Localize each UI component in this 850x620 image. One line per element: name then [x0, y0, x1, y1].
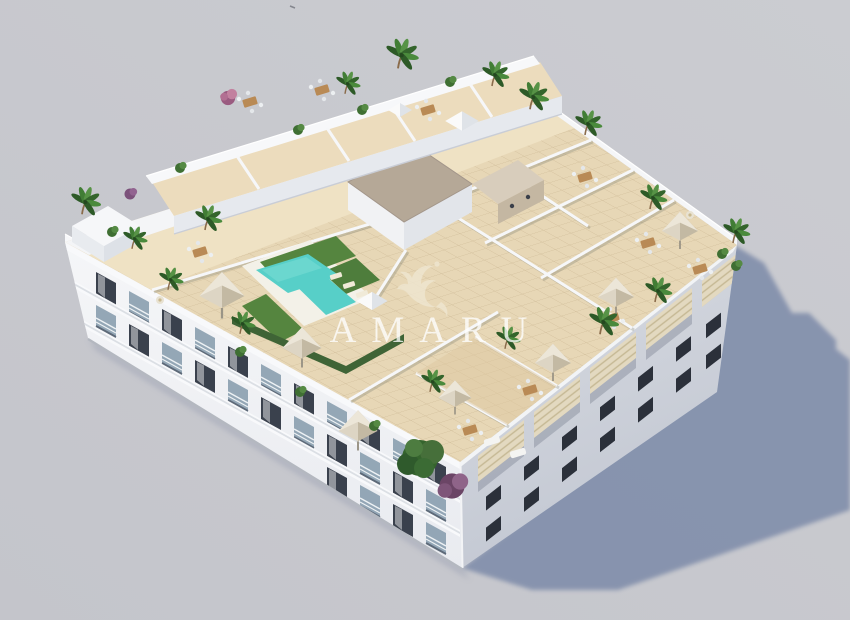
- round-table: [156, 296, 164, 304]
- annex-window: [526, 195, 530, 199]
- annex-window: [510, 204, 514, 208]
- architectural-render: AMARU: [0, 0, 850, 620]
- brand-watermark-text: AMARU: [330, 310, 543, 351]
- render-canvas: AMARU: [0, 0, 850, 620]
- round-table: [686, 211, 694, 219]
